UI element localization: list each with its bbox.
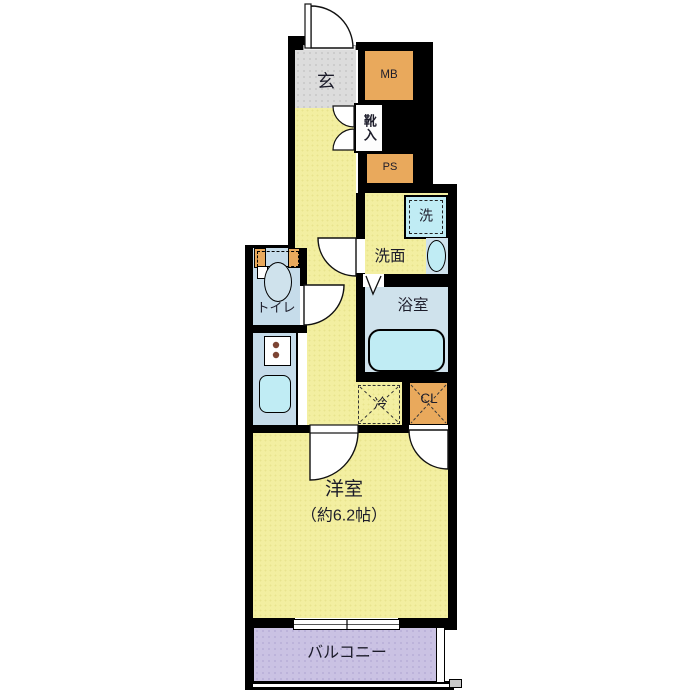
toilet-bowl: [264, 262, 292, 302]
fridge-label: 冷: [374, 397, 388, 411]
wall-segment: [300, 248, 307, 286]
wall-segment: [358, 184, 457, 193]
bathroom-label: 浴室: [397, 298, 428, 314]
wall-segment: [356, 193, 365, 239]
pipe-space-label: PS: [383, 162, 398, 174]
western-room-door-leaf: [310, 425, 358, 433]
stove: [264, 336, 291, 366]
wall-segment: [245, 325, 307, 333]
western-room-size-label: （約6.2帖）: [301, 509, 387, 526]
balcony-railing-line: [253, 684, 452, 687]
balcony-side-partition: [436, 628, 445, 682]
vanity-basin: [427, 240, 446, 272]
western-room-floor: [253, 433, 448, 618]
hallway-upper: [295, 108, 356, 248]
wall-segment: [356, 372, 455, 382]
closet-label: CL: [420, 392, 437, 406]
wall-segment: [356, 425, 409, 433]
wall-segment: [402, 382, 409, 426]
washroom-label: 洗面: [374, 249, 405, 265]
wall-segment: [384, 274, 448, 287]
washer-label: 洗: [419, 209, 433, 224]
wall-segment: [245, 425, 310, 433]
bathtub: [368, 329, 445, 372]
wall-segment: [356, 273, 365, 382]
entrance-label: 玄: [317, 73, 335, 92]
wall-segment: [448, 184, 457, 630]
drain-stub: [449, 679, 462, 688]
balcony-window: [293, 619, 400, 630]
floor-plan: 玄 MB 靴入 PS 洗 洗面 浴室 トイレ 冷 CL 洋室 （約6.2帖） バ…: [0, 0, 700, 700]
entrance-door-swing: [311, 6, 353, 48]
shoe-cabinet-label: 靴入: [362, 114, 376, 142]
kitchen-sink: [259, 375, 291, 413]
meter-box-label: MB: [380, 69, 397, 81]
toilet-label: トイレ: [256, 301, 295, 315]
bathroom-door-opening: [363, 274, 384, 287]
western-room-label: 洋室: [325, 480, 363, 500]
balcony-label: バルコニー: [307, 646, 387, 663]
hallway-lower: [307, 248, 356, 425]
